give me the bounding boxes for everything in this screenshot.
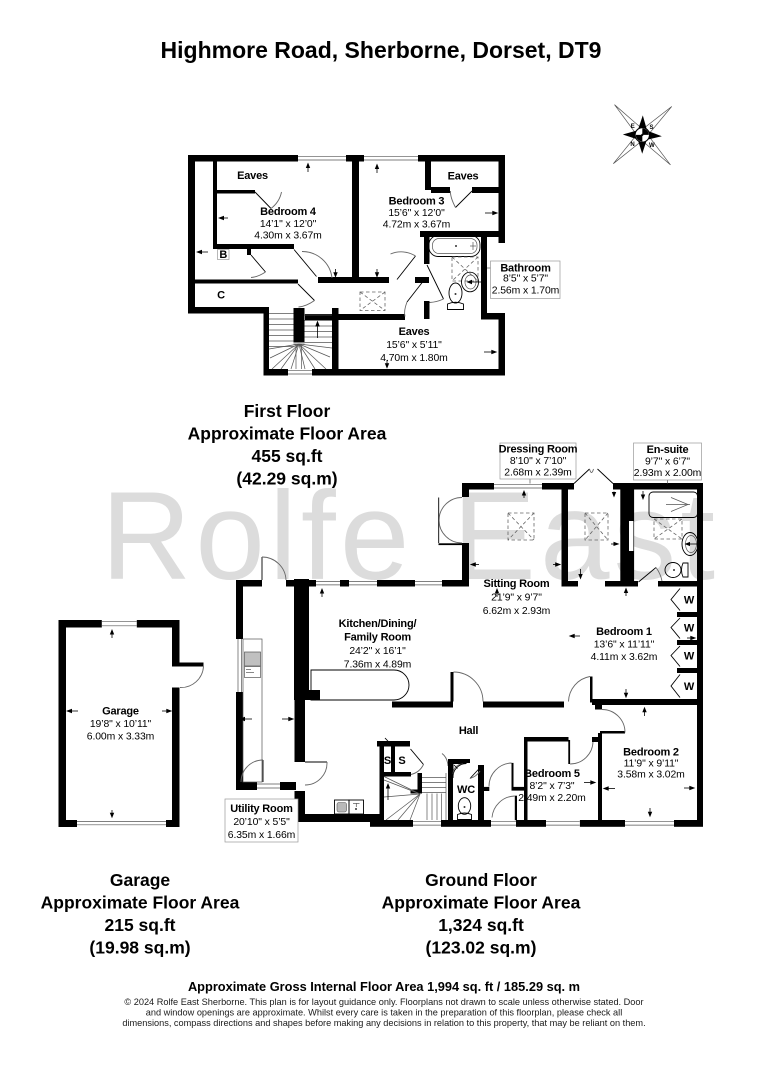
svg-text:20’10" x 5’5": 20’10" x 5’5" [233,817,290,828]
svg-text:11’9" x 9’11": 11’9" x 9’11" [624,759,679,770]
svg-text:455 sq.ft: 455 sq.ft [252,446,323,466]
svg-text:Approximate Floor Area: Approximate Floor Area [382,893,581,913]
svg-text:© 2024 Rolfe East Sherborne. T: © 2024 Rolfe East Sherborne. This plan i… [124,997,643,1007]
svg-text:S: S [398,755,405,767]
svg-text:Bedroom 1: Bedroom 1 [596,626,652,638]
svg-text:215 sq.ft: 215 sq.ft [105,915,176,935]
svg-text:1,324 sq.ft: 1,324 sq.ft [438,915,524,935]
svg-text:Sitting Room: Sitting Room [483,578,549,590]
svg-text:W: W [684,651,695,663]
svg-text:14’1" x 12’0": 14’1" x 12’0" [260,219,317,230]
svg-text:C: C [217,290,225,302]
svg-text:2.56m x 1.70m: 2.56m x 1.70m [492,286,559,297]
svg-text:4.70m x 1.80m: 4.70m x 1.80m [380,353,447,364]
svg-text:WC: WC [457,784,475,796]
svg-text:Dressing Room: Dressing Room [499,444,578,456]
svg-text:4.72m x 3.67m: 4.72m x 3.67m [383,220,450,231]
svg-text:Bedroom 2: Bedroom 2 [623,747,679,759]
svg-text:First Floor: First Floor [244,401,331,421]
svg-text:Approximate Gross Internal Flo: Approximate Gross Internal Floor Area 1,… [188,979,580,994]
svg-text:Bedroom 3: Bedroom 3 [389,196,445,208]
svg-text:Eaves: Eaves [237,170,268,182]
svg-text:9’7" x 6’7": 9’7" x 6’7" [645,457,690,468]
svg-text:Kitchen/Dining/: Kitchen/Dining/ [339,618,417,630]
svg-text:Approximate Floor Area: Approximate Floor Area [188,424,387,444]
svg-text:S: S [384,755,391,767]
svg-text:7.36m x 4.89m: 7.36m x 4.89m [344,660,411,671]
svg-text:19’8" x 10’11": 19’8" x 10’11" [90,719,152,730]
svg-text:13’6" x 11’11": 13’6" x 11’11" [594,640,655,651]
svg-text:Bedroom 5: Bedroom 5 [524,768,580,780]
svg-text:8’5" x 5’7": 8’5" x 5’7" [503,274,548,285]
svg-text:Garage: Garage [102,706,139,718]
svg-text:(19.98 sq.m): (19.98 sq.m) [89,938,190,958]
svg-text:B: B [219,249,227,261]
svg-text:Highmore Road, Sherborne, Dors: Highmore Road, Sherborne, Dorset, DT9 [161,37,602,63]
svg-text:21’9" x 9’7": 21’9" x 9’7" [491,593,542,604]
svg-text:6.35m x 1.66m: 6.35m x 1.66m [228,830,295,841]
svg-text:Eaves: Eaves [448,171,479,183]
svg-text:W: W [684,623,695,635]
svg-text:6.62m x 2.93m: 6.62m x 2.93m [483,606,550,617]
svg-text:W: W [684,681,695,693]
svg-text:E: E [631,124,635,130]
svg-text:Garage: Garage [110,870,171,890]
svg-text:8’2" x 7’3": 8’2" x 7’3" [530,781,575,792]
svg-text:Family Room: Family Room [344,632,411,644]
svg-text:W: W [684,595,695,607]
svg-text:6.00m x 3.33m: 6.00m x 3.33m [87,732,154,743]
svg-text:Eaves: Eaves [399,326,430,338]
svg-text:15’6" x 12’0": 15’6" x 12’0" [388,208,445,219]
svg-text:(42.29 sq.m): (42.29 sq.m) [236,469,337,489]
svg-text:Approximate Floor Area: Approximate Floor Area [41,893,240,913]
svg-text:3.58m x 3.02m: 3.58m x 3.02m [617,770,684,781]
svg-text:Utility Room: Utility Room [230,803,293,815]
svg-text:(123.02 sq.m): (123.02 sq.m) [426,938,537,958]
svg-text:Bedroom 4: Bedroom 4 [260,206,317,218]
svg-text:2.68m x 2.39m: 2.68m x 2.39m [504,468,571,479]
svg-text:2.93m x 2.00m: 2.93m x 2.00m [634,468,701,479]
svg-text:and window openings are approx: and window openings are approximate. Whi… [146,1008,622,1018]
svg-text:N: N [630,142,634,148]
svg-text:15’6" x 5’11": 15’6" x 5’11" [386,340,442,351]
svg-text:En-suite: En-suite [647,444,689,456]
svg-text:24’2" x 16’1": 24’2" x 16’1" [349,646,406,657]
svg-text:2.49m x 2.20m: 2.49m x 2.20m [518,793,585,804]
svg-text:8’10" x 7’10": 8’10" x 7’10" [510,456,567,467]
svg-text:Ground Floor: Ground Floor [425,870,537,890]
svg-text:dimensions, compass directions: dimensions, compass directions and shape… [122,1018,645,1028]
svg-text:4.30m x 3.67m: 4.30m x 3.67m [254,231,321,242]
svg-text:Hall: Hall [459,725,479,737]
svg-text:S: S [649,125,653,131]
svg-text:4.11m x 3.62m: 4.11m x 3.62m [591,652,658,663]
svg-text:W: W [649,143,655,149]
